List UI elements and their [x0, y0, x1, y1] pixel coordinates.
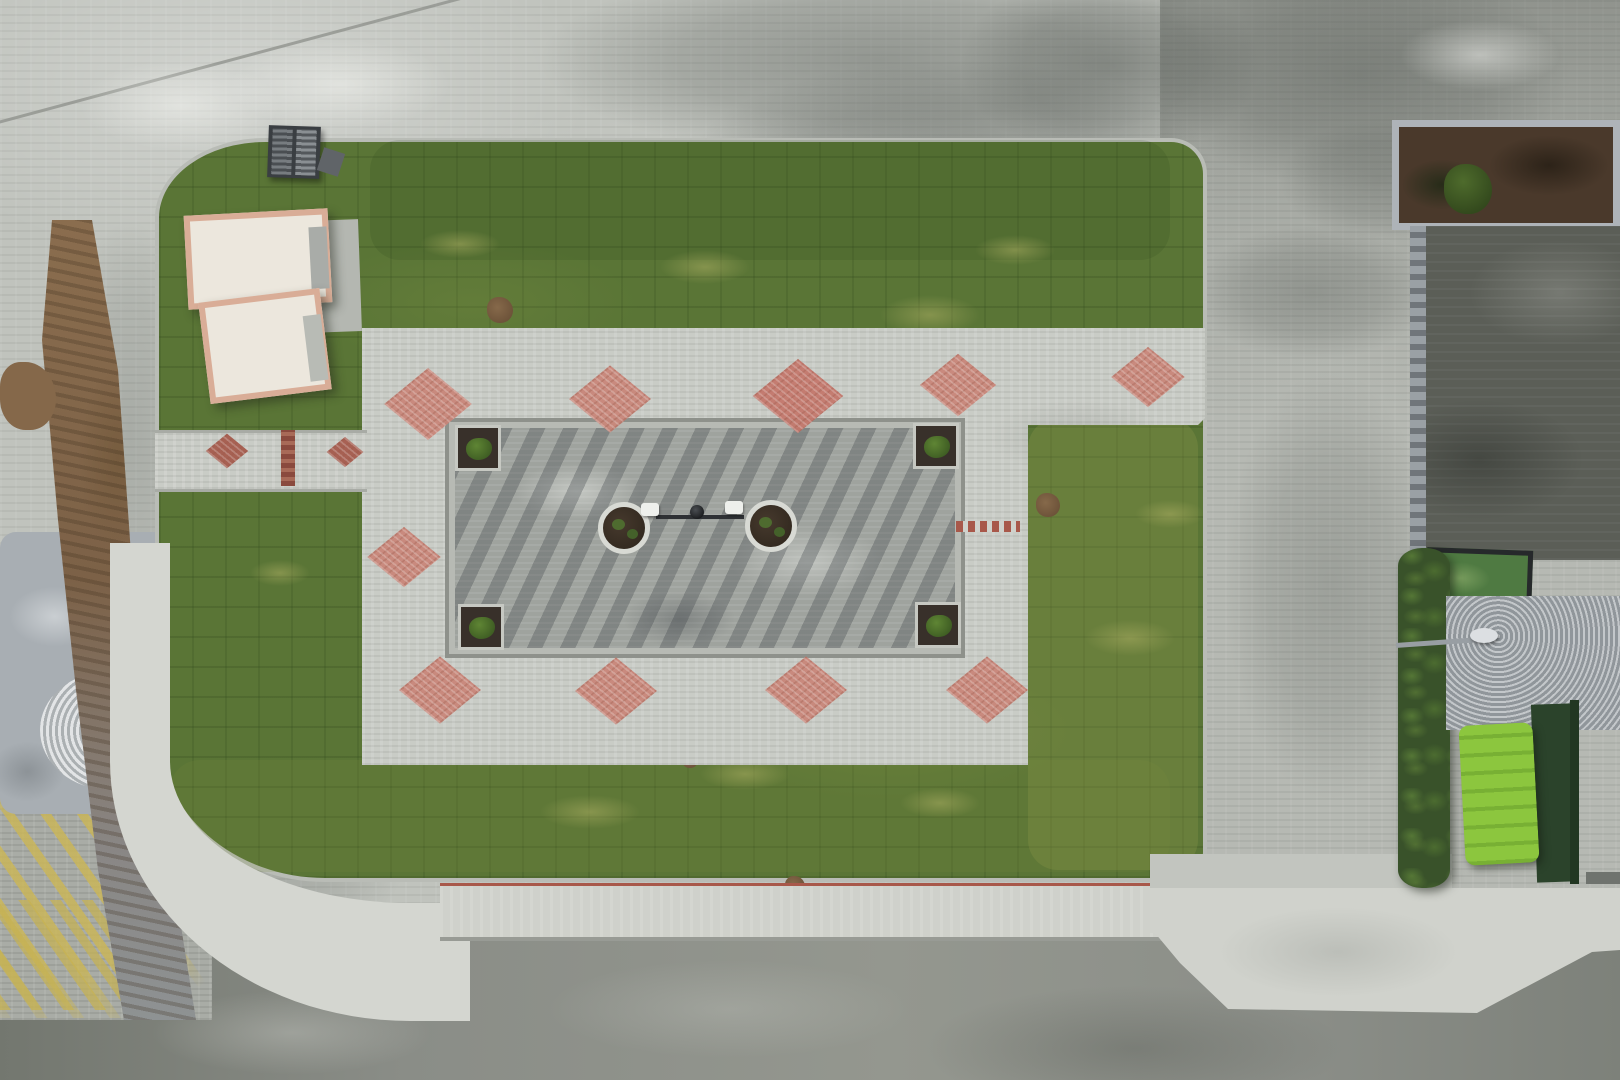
dry-grass-patch	[1135, 500, 1205, 528]
park-decals-layer	[0, 0, 1620, 1080]
seesaw-pad	[641, 503, 659, 516]
hvac-grille	[295, 129, 317, 176]
pink-diamond-paving	[753, 359, 844, 433]
dirt-patch	[0, 362, 56, 430]
dry-grass-patch	[700, 758, 790, 790]
lawn-tint	[1028, 418, 1198, 870]
gravel-patch	[0, 532, 182, 814]
pavement-seam	[0, 0, 468, 125]
east-parking-pavement	[1160, 0, 1620, 1080]
sidewalk-markings-layer	[0, 0, 1620, 1080]
wet-patch	[0, 1010, 280, 1080]
west-walkway	[155, 430, 367, 492]
hvac-unit	[267, 125, 321, 179]
planter-shrub	[1444, 164, 1492, 214]
corner-planter	[458, 604, 504, 650]
garage-ramp	[1418, 226, 1620, 560]
dry-grass-patch	[420, 230, 500, 258]
planter-plant	[627, 529, 638, 539]
dark-green-wall	[1531, 703, 1577, 882]
parking-paver-edge	[1150, 854, 1452, 888]
circular-planter	[598, 502, 650, 554]
ramp-fence	[1410, 226, 1426, 560]
fitness-court-paving	[445, 418, 965, 658]
pink-diamond-paving	[367, 527, 441, 587]
pink-diamond-paving	[399, 656, 481, 723]
dry-patch	[80, 60, 280, 150]
dirt-spot	[682, 752, 698, 768]
hvac-grille	[271, 128, 293, 175]
pink-diamond-paving	[384, 368, 472, 440]
lawn-tint-layer	[0, 0, 1620, 1080]
south-street-asphalt	[0, 922, 1620, 1080]
south-sidewalk	[440, 883, 1167, 941]
walkway-red-strip	[281, 430, 295, 486]
hvac-small-box	[317, 147, 345, 177]
planter-plant	[774, 527, 785, 537]
center-pole-base	[690, 505, 704, 519]
wet-patch	[540, 0, 1220, 160]
pink-diamond-paving	[1111, 347, 1185, 407]
lawn-tint	[370, 140, 1170, 260]
utility-pad	[306, 219, 362, 333]
ramp-markings-layer	[0, 0, 1620, 1080]
planter-plant	[926, 615, 952, 637]
palm-planter-frame	[1392, 120, 1620, 230]
wet-patch	[320, 225, 630, 340]
park-lawn	[155, 138, 1207, 882]
pink-diamond-paving	[206, 434, 248, 469]
dark-green-wall-edge	[1570, 700, 1579, 884]
dry-grass-patch	[880, 295, 980, 335]
planter-plant	[612, 519, 625, 530]
dirt-strip	[28, 220, 208, 1020]
utility-shed-small	[198, 288, 332, 404]
pink-diamond-paving	[765, 656, 847, 723]
dry-patch	[470, 250, 630, 310]
red-dashed-paver-line	[956, 521, 1020, 532]
grass-topped-table	[1425, 547, 1533, 623]
dry-grass-patch	[975, 235, 1055, 265]
pink-diamond-paving	[569, 365, 651, 432]
wet-patch	[1225, 370, 1435, 800]
yellow-tactile-paving	[0, 772, 206, 1018]
wet-patch	[1195, 225, 1430, 360]
planter-plant	[759, 517, 772, 528]
trees-layer	[0, 0, 1620, 1080]
wooden-bench	[382, 343, 418, 356]
dry-patch	[580, 170, 810, 250]
planter-plant	[466, 438, 492, 460]
pink-diamond-paving	[327, 437, 364, 467]
dry-patch	[1400, 20, 1560, 90]
wooden-bench	[494, 355, 530, 368]
plaza-paving	[362, 328, 1205, 765]
dry-grass-patch	[660, 250, 750, 284]
pink-diamond-paving	[946, 656, 1028, 723]
wooden-bench	[877, 720, 913, 733]
lawn-tint	[170, 760, 1170, 872]
yellow-tactile-paving-2	[0, 900, 150, 1010]
vehicles-layer	[0, 0, 1620, 1080]
dry-grass-patch	[900, 788, 980, 818]
street-lamp-head	[1470, 628, 1498, 643]
gravel-heap	[40, 672, 178, 790]
dirt-spot	[487, 297, 513, 323]
southeast-concrete-apron	[1150, 886, 1620, 1018]
dry-grass-patch	[540, 795, 640, 829]
southeast-details-layer	[0, 0, 1620, 1080]
seesaw-bar	[656, 515, 744, 519]
wet-patch	[60, 220, 200, 640]
wooden-bench	[858, 351, 894, 364]
curb-structure	[1586, 872, 1620, 884]
tall-hedge	[1398, 548, 1450, 888]
curved-sidewalk-southwest	[110, 543, 470, 1021]
wooden-bench	[510, 722, 546, 735]
paver-plaza-ground	[0, 0, 1620, 1080]
corner-planter	[455, 425, 501, 471]
pink-diamond-paving	[575, 657, 657, 724]
wet-patch	[600, 150, 880, 250]
corner-planter	[913, 423, 959, 469]
dry-grass-patch	[1085, 620, 1175, 656]
planter-plant	[469, 617, 495, 639]
dry-grass-patch	[250, 560, 310, 586]
wooden-bench	[686, 355, 722, 368]
planter-plant	[924, 436, 950, 458]
dirt-spot	[785, 876, 805, 896]
people-layer	[0, 0, 1620, 1080]
gravel-bed-southeast	[1446, 596, 1620, 730]
aerial-park-scene	[0, 0, 1620, 1080]
wet-patch	[690, 60, 1210, 270]
utility-shed-large	[184, 208, 333, 309]
wet-patch	[1150, 0, 1570, 190]
shed-side-panel	[303, 314, 329, 382]
green-utility-container	[1458, 722, 1539, 866]
old-pavement-southwest	[0, 688, 212, 1020]
pink-diamond-paving	[920, 354, 996, 417]
wet-patch	[140, 620, 420, 970]
dirt-spot	[1036, 493, 1060, 517]
circular-planter	[745, 500, 797, 552]
dry-patch	[230, 40, 450, 130]
seesaw-pad	[725, 501, 743, 514]
corner-planter	[915, 602, 961, 648]
wet-patch	[1280, 120, 1480, 240]
street-lamp-arm	[1396, 637, 1480, 648]
wet-dry-patches-layer	[0, 0, 1620, 1080]
wet-patch	[960, 0, 1260, 160]
wooden-bench	[695, 722, 731, 735]
shed-door-panel	[308, 226, 329, 289]
